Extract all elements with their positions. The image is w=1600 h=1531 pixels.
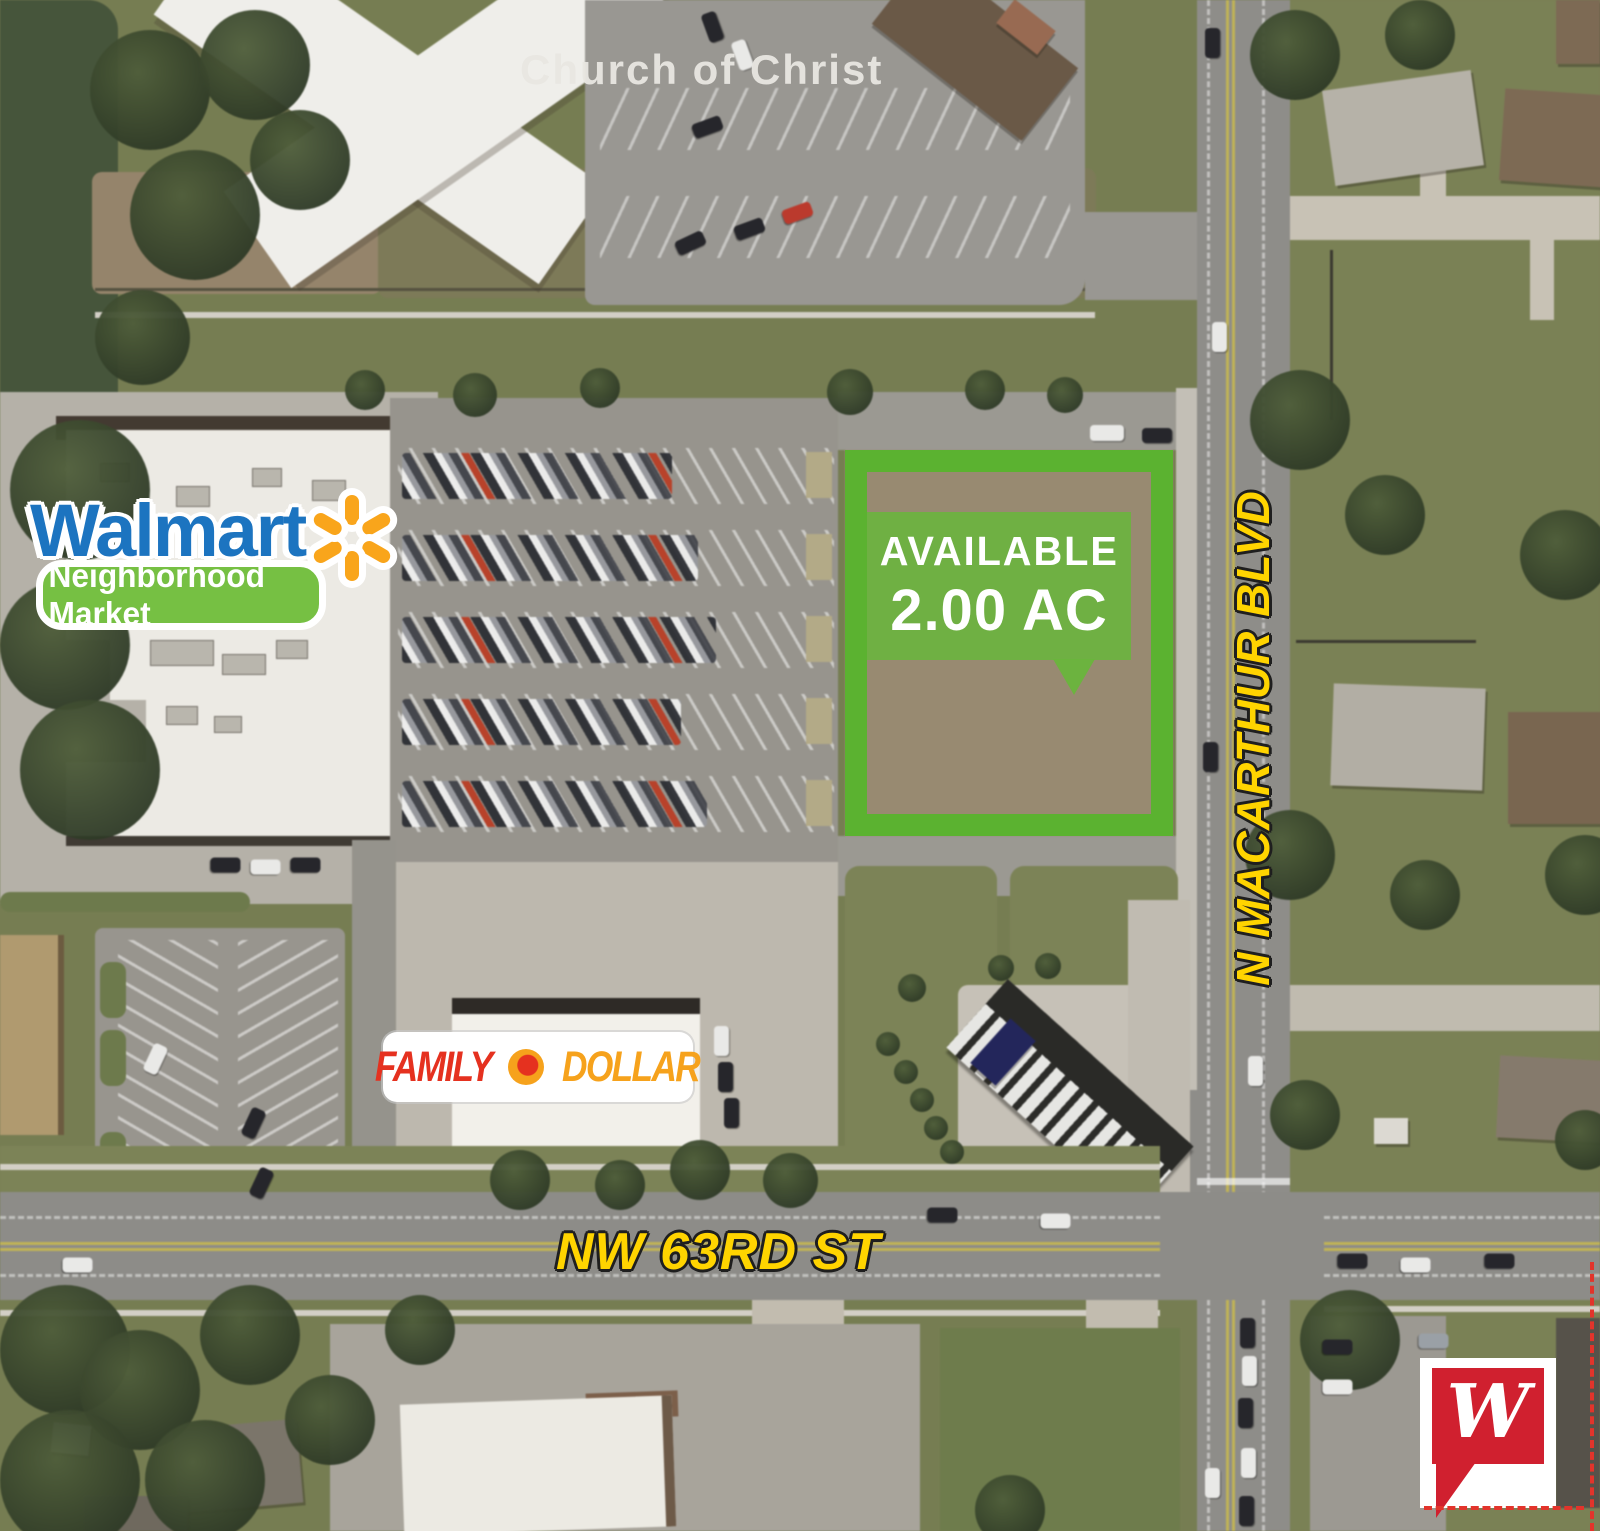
family-dollar-word2: DOLLAR [562,1043,699,1092]
family-dollar-logo: FAMILY DOLLAR [383,1032,693,1102]
parcel-acreage-label: 2.00 AC [890,577,1108,644]
parcel-callout-pointer [1053,659,1095,695]
property-line-dashed [1424,1506,1584,1510]
aerial-map: Church of Christ AVAILABLE 2.00 AC N MAC… [0,0,1600,1531]
family-dollar-word1: FAMILY [375,1043,492,1092]
walgreens-monogram-box: W [1432,1368,1544,1464]
street-label-macarthur: N MACARTHUR BLVD [1225,478,1281,998]
walgreens-monogram: W [1446,1369,1529,1455]
parcel-status-label: AVAILABLE [879,528,1118,575]
street-label-nw63rd: NW 63RD ST [556,1222,881,1282]
walmart-subtitle-pill: Neighborhood Market [36,560,326,630]
property-line-dashed [1590,1262,1594,1531]
parcel-callout: AVAILABLE 2.00 AC [867,512,1131,660]
family-dollar-coin-icon [508,1049,544,1085]
marketing-overlays: Church of Christ AVAILABLE 2.00 AC N MAC… [0,0,1600,1531]
church-label: Church of Christ [520,46,883,94]
walmart-subtitle: Neighborhood Market [49,557,314,633]
